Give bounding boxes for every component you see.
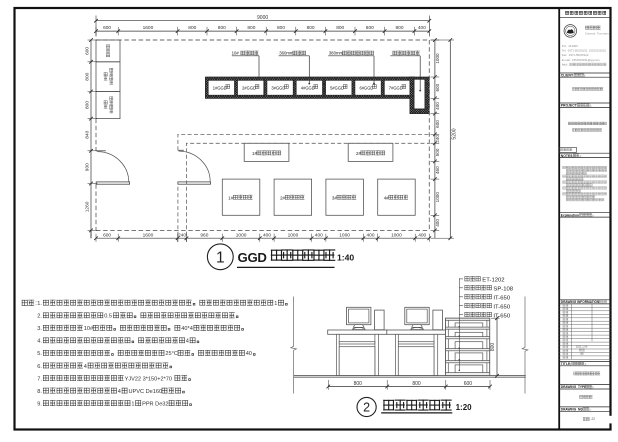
svg-text:1: 1 xyxy=(274,301,277,307)
svg-text:400: 400 xyxy=(366,233,374,239)
svg-text:E-mail: 1551515151@qq.com: E-mail: 1551515151@qq.com xyxy=(562,58,600,62)
svg-text:1: 1 xyxy=(216,249,225,266)
svg-text:(: ( xyxy=(575,104,576,108)
svg-text:1#: 1# xyxy=(252,151,257,156)
svg-text:500: 500 xyxy=(435,148,440,156)
svg-text:800: 800 xyxy=(307,25,315,31)
svg-text:3#: 3# xyxy=(332,195,337,200)
svg-text:YJV22 3*150+2*70: YJV22 3*150+2*70 xyxy=(125,376,172,382)
svg-text:400: 400 xyxy=(418,25,426,31)
svg-text:800: 800 xyxy=(85,72,91,80)
svg-text:1260: 1260 xyxy=(85,201,91,212)
svg-text:2.: 2. xyxy=(37,314,42,320)
svg-text:IT-650: IT-650 xyxy=(493,313,510,319)
svg-text:2021.1.06: 2021.1.06 xyxy=(576,344,588,348)
svg-text:DRAWING NO: DRAWING NO xyxy=(561,408,583,412)
svg-text:240: 240 xyxy=(178,233,186,239)
svg-text:400: 400 xyxy=(418,233,426,239)
svg-text:600: 600 xyxy=(85,47,91,55)
svg-text:Tel: 0371-55315151 155151515: Tel: 0371-55315151 15515151515 xyxy=(562,49,607,53)
svg-text:):: ): xyxy=(589,408,591,412)
svg-text:400: 400 xyxy=(315,233,323,239)
svg-text:5#GGD: 5#GGD xyxy=(330,85,344,90)
svg-text:):: ): xyxy=(580,154,582,158)
svg-text:10#: 10# xyxy=(232,51,240,56)
svg-text:400: 400 xyxy=(435,102,440,110)
svg-text:240: 240 xyxy=(435,135,440,143)
svg-text:4: 4 xyxy=(84,364,87,370)
svg-text:1.: 1. xyxy=(37,301,42,307)
svg-text:600: 600 xyxy=(103,25,111,31)
svg-text:1#: 1# xyxy=(228,195,233,200)
svg-text:900: 900 xyxy=(85,163,91,171)
svg-text:800: 800 xyxy=(490,343,496,352)
svg-text:):: ): xyxy=(585,362,587,366)
svg-text:9.: 9. xyxy=(37,401,42,407)
svg-text:800: 800 xyxy=(412,381,421,387)
svg-text:):: ): xyxy=(584,73,586,77)
svg-text:40: 40 xyxy=(246,351,252,357)
svg-text:800: 800 xyxy=(188,25,196,31)
svg-text:800: 800 xyxy=(354,381,363,387)
svg-text:600: 600 xyxy=(103,233,111,239)
svg-text:400: 400 xyxy=(263,233,271,239)
svg-text:0.5: 0.5 xyxy=(104,314,112,320)
svg-text:5.: 5. xyxy=(37,351,42,357)
svg-text:1600: 1600 xyxy=(143,233,154,239)
svg-text:2#GGD: 2#GGD xyxy=(242,85,256,90)
svg-text:GGD: GGD xyxy=(238,250,267,265)
svg-text:9000: 9000 xyxy=(257,15,268,21)
svg-text:1:40: 1:40 xyxy=(337,253,354,263)
svg-text:1600: 1600 xyxy=(143,25,154,31)
svg-text:4#GGD: 4#GGD xyxy=(301,85,315,90)
svg-text:IT-650: IT-650 xyxy=(493,296,510,302)
svg-text:8.: 8. xyxy=(37,389,42,395)
svg-text:SP-108: SP-108 xyxy=(493,287,513,293)
svg-text:Add:: Add: xyxy=(562,63,568,67)
svg-text:1:20: 1:20 xyxy=(456,403,473,412)
svg-text:(: ( xyxy=(573,73,574,77)
svg-text:5200: 5200 xyxy=(452,128,458,139)
svg-text:800: 800 xyxy=(277,25,285,31)
svg-text:(: ( xyxy=(581,408,582,412)
svg-text:(: ( xyxy=(571,154,572,158)
svg-text:1000: 1000 xyxy=(236,233,247,239)
svg-text:1000: 1000 xyxy=(288,233,299,239)
svg-text:3.: 3. xyxy=(37,326,42,332)
svg-text:360mm: 360mm xyxy=(279,51,294,56)
svg-text:Explanation: Explanation xyxy=(561,213,579,217)
svg-text:40*4: 40*4 xyxy=(181,326,193,332)
svg-text:3#GGD: 3#GGD xyxy=(271,85,285,90)
svg-text:(: ( xyxy=(584,385,585,389)
svg-text:(: ( xyxy=(570,362,571,366)
svg-text:1000: 1000 xyxy=(435,192,440,203)
svg-text:800: 800 xyxy=(85,101,91,109)
svg-text:800: 800 xyxy=(366,25,374,31)
svg-text:2#: 2# xyxy=(356,151,361,156)
svg-text:800: 800 xyxy=(336,25,344,31)
svg-text:IT-650: IT-650 xyxy=(493,305,510,311)
svg-text:1000: 1000 xyxy=(391,233,402,239)
svg-text:7.: 7. xyxy=(37,376,42,382)
svg-text:460: 460 xyxy=(435,166,440,174)
svg-text:ET-1202: ET-1202 xyxy=(482,278,504,284)
svg-text:PPR De32: PPR De32 xyxy=(142,401,168,407)
svg-text:960: 960 xyxy=(200,233,208,239)
svg-text:DRAWING TYPE: DRAWING TYPE xyxy=(561,385,587,389)
svg-text:10#: 10# xyxy=(84,326,94,332)
svg-text:800: 800 xyxy=(218,25,226,31)
svg-text:1000: 1000 xyxy=(339,233,350,239)
svg-text:DRAWING INFORMATION: DRAWING INFORMATION xyxy=(561,300,600,304)
svg-text:380mm: 380mm xyxy=(329,51,344,56)
svg-text:2: 2 xyxy=(363,401,370,415)
svg-text:):: ): xyxy=(592,385,594,389)
svg-text:):: ): xyxy=(592,213,594,217)
svg-text:800: 800 xyxy=(247,25,255,31)
svg-text:1: 1 xyxy=(131,401,134,407)
svg-text:600: 600 xyxy=(435,83,440,91)
svg-text:600: 600 xyxy=(435,120,440,128)
svg-text:):: ): xyxy=(590,104,592,108)
svg-text:1000: 1000 xyxy=(435,53,440,64)
svg-text:2#: 2# xyxy=(280,195,285,200)
svg-text:840: 840 xyxy=(85,130,91,138)
svg-text:4: 4 xyxy=(118,389,121,395)
svg-text:4#: 4# xyxy=(384,195,389,200)
svg-text:6#GGD: 6#GGD xyxy=(360,85,374,90)
svg-text:4.: 4. xyxy=(37,339,42,345)
svg-text:6.: 6. xyxy=(37,364,42,370)
svg-text:800: 800 xyxy=(395,25,403,31)
svg-text:400: 400 xyxy=(435,219,440,227)
svg-text:Dawnai Fountain: Dawnai Fountain xyxy=(585,32,609,36)
svg-text:4: 4 xyxy=(186,339,189,345)
svg-text:-22: -22 xyxy=(590,417,595,421)
svg-text:25°C: 25°C xyxy=(165,351,178,357)
svg-text:1#GGD: 1#GGD xyxy=(213,85,227,90)
svg-text:7#GGD: 7#GGD xyxy=(389,85,403,90)
svg-text:P.C: 413000: P.C: 413000 xyxy=(562,44,578,48)
svg-text:UPVC De160: UPVC De160 xyxy=(129,389,163,395)
svg-text:(: ( xyxy=(578,213,579,217)
svg-text:600: 600 xyxy=(464,381,473,387)
svg-text:Fax: 0371-55315122: Fax: 0371-55315122 xyxy=(562,53,589,57)
